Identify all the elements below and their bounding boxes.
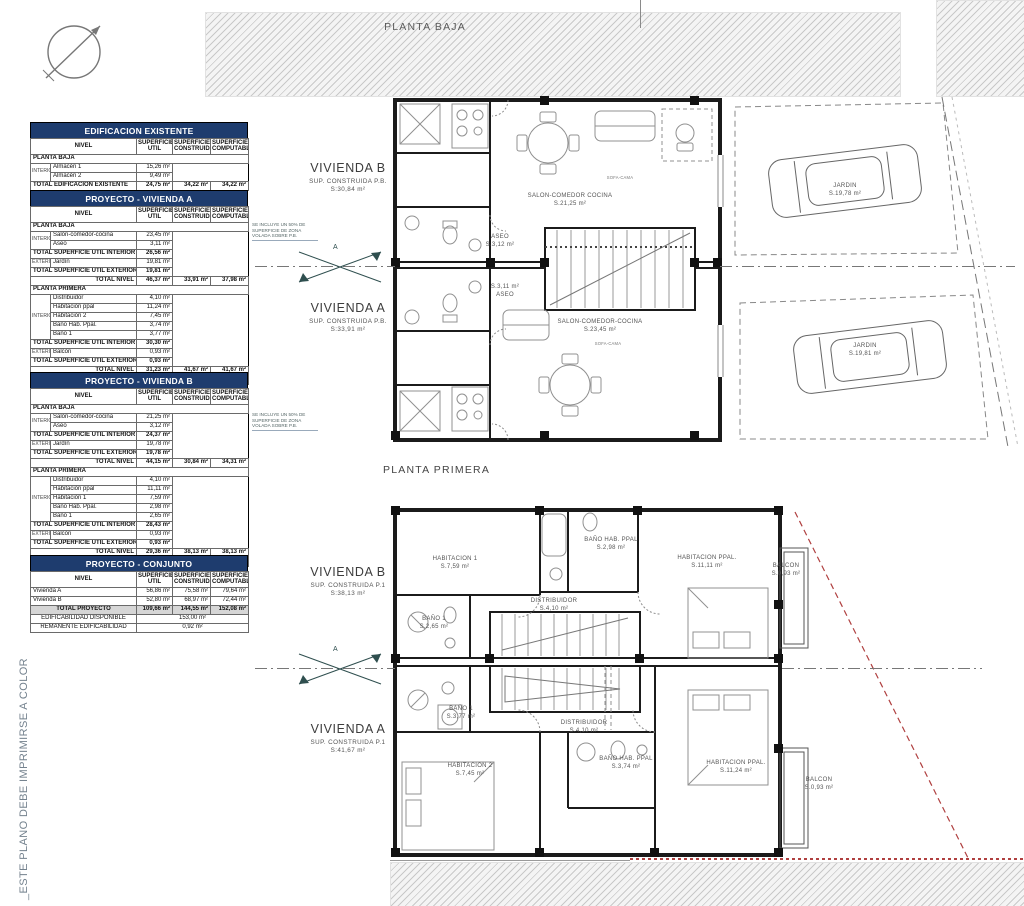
table-cell: TOTAL SUPERFICIE UTIL EXTERIOR	[31, 357, 137, 366]
svg-text:A: A	[333, 646, 338, 653]
table-cell: TOTAL SUPERFICIE UTIL INTERIOR	[31, 249, 137, 258]
dwelling-area: S:33,91 m²	[283, 326, 413, 334]
table-cell	[211, 476, 249, 485]
room-name: HABITACION PPAL.	[663, 555, 751, 563]
room-name: BAÑO 1	[400, 616, 468, 624]
table-cell: NIVEL	[31, 139, 137, 155]
dwelling-label-vivienda-b-pb: VIVIENDA B SUP. CONSTRUIDA P.B. S:30,84 …	[283, 161, 413, 194]
room-name: ASEO	[473, 292, 537, 300]
table-cell: SUPERFICIE COMPUTABLE	[211, 207, 249, 223]
table-cell	[211, 530, 249, 539]
room-name: DISTRIBUIDOR	[545, 720, 623, 728]
summary-table-proyecto-vivienda-a: PROYECTO - VIVIENDA A NIVELSUPERFICIE UT…	[30, 190, 248, 385]
table-cell	[211, 494, 249, 503]
table-cell: Habitación ppal	[51, 303, 137, 312]
room-area: S.11,11 m²	[663, 563, 751, 571]
table-cell: 152,08 m²	[211, 605, 249, 614]
table-cell	[211, 521, 249, 530]
table-cell: 3,74 m²	[137, 321, 173, 330]
dwelling-sub: SUP. CONSTRUIDA P.B.	[283, 318, 413, 326]
table-cell: Aseo	[51, 240, 137, 249]
table-cell: 2,65 m²	[137, 512, 173, 521]
table-cell: INTERIOR	[31, 294, 51, 339]
room-label-aseo-b: ASEO S.3,12 m²	[468, 234, 532, 250]
table-cell: 33,91 m²	[173, 276, 211, 285]
table-cell	[211, 339, 249, 348]
room-name: HABITACION 2	[430, 763, 510, 771]
table-cell: 153,00 m²	[137, 614, 249, 623]
table-cell: SUPERFICIE UTIL	[137, 572, 173, 588]
table-cell: SUPERFICIE CONSTRUIDA	[173, 207, 211, 223]
room-area: S.2,65 m²	[400, 624, 468, 632]
table-cell	[173, 258, 211, 267]
table-cell	[211, 348, 249, 357]
table-cell	[173, 440, 211, 449]
table-cell: 15,26 m²	[137, 163, 173, 172]
table-cell	[173, 539, 211, 548]
room-label-habitacion1-b: HABITACION 1 S.7,59 m²	[415, 556, 495, 572]
room-area: S.23,45 m²	[535, 327, 665, 335]
table-cell: 7,59 m²	[137, 494, 173, 503]
table-cell	[173, 476, 211, 485]
dwelling-area: S:41,67 m²	[283, 747, 413, 755]
table-cell: TOTAL SUPERFICIE UTIL INTERIOR	[31, 431, 137, 440]
room-label-distribuidor-a: DISTRIBUIDOR S.4,10 m²	[545, 720, 623, 736]
dwelling-area: S:30,84 m²	[283, 186, 413, 194]
room-area: S.0,93 m²	[755, 571, 817, 579]
table-cell: TOTAL NIVEL	[31, 276, 137, 285]
table-cell: 7,45 m²	[137, 312, 173, 321]
dwelling-sub: SUP. CONSTRUIDA P.1	[283, 739, 413, 747]
dwelling-label-vivienda-a-pb: VIVIENDA A SUP. CONSTRUIDA P.B. S:33,91 …	[283, 301, 413, 334]
table-cell	[211, 312, 249, 321]
table-cell: 52,80 m²	[137, 596, 173, 605]
table-cell: 34,31 m²	[211, 458, 249, 467]
table-cell: 30,30 m²	[137, 339, 173, 348]
table-cell: EXTERIOR	[31, 530, 51, 539]
section-axis-line	[720, 266, 1015, 267]
room-name: BAÑO 1	[427, 706, 495, 714]
room-label-aseo-a: S.3,11 m² ASEO	[473, 284, 537, 300]
dwelling-name: VIVIENDA A	[283, 722, 413, 736]
room-label-habitacion2-a: HABITACION 2 S.7,45 m²	[430, 763, 510, 779]
hatched-site-band-top-right	[936, 0, 1024, 97]
table-cell: Jardín	[51, 258, 137, 267]
table-cell: Habitación ppal	[51, 485, 137, 494]
table-cell: 34,22 m²	[211, 181, 249, 190]
summary-table-proyecto-conjunto: PROYECTO - CONJUNTO NIVELSUPERFICIE UTIL…	[30, 555, 248, 633]
table-cell: 11,11 m²	[137, 485, 173, 494]
table-cell: Aseo	[51, 422, 137, 431]
room-area: S.3,74 m²	[590, 764, 662, 772]
table-cell: 19,78 m²	[137, 440, 173, 449]
room-label-salon-a: SALON-COMEDOR-COCINA S.23,45 m²	[535, 319, 665, 335]
table-cell	[211, 431, 249, 440]
table-cell	[211, 512, 249, 521]
table-cell	[173, 494, 211, 503]
table-cell: EXTERIOR	[31, 258, 51, 267]
room-area: S.21,25 m²	[505, 201, 635, 209]
table-cell: Baño 1	[51, 330, 137, 339]
table-cell: 0,93 m²	[137, 530, 173, 539]
room-area: S.2,98 m²	[575, 545, 647, 553]
room-area: S.19,78 m²	[805, 191, 885, 199]
ground-floor-title: PLANTA BAJA	[340, 21, 510, 33]
table-cell: SUPERFICIE COMPUTABLE	[211, 139, 249, 155]
room-name: JARDIN	[805, 183, 885, 191]
table-cell: INTERIOR	[31, 413, 51, 431]
room-label-sofa-b: SOFA-CAMA	[595, 175, 645, 180]
room-name: BAÑO HAB. PPAL	[590, 756, 662, 764]
surface-note-pb-b: SE INCLUYE UN 50% DESUPERFICIE DE ZONAVO…	[252, 222, 318, 241]
table-cell: 0,93 m²	[137, 539, 173, 548]
table-cell: 46,37 m²	[137, 276, 173, 285]
table-cell	[173, 249, 211, 258]
table-cell	[173, 312, 211, 321]
table-cell: TOTAL SUPERFICIE UTIL INTERIOR	[31, 521, 137, 530]
table-cell: SUPERFICIE CONSTRUIDA	[173, 389, 211, 405]
table-cell: 3,12 m²	[137, 422, 173, 431]
table-cell	[211, 539, 249, 548]
table-cell	[211, 267, 249, 276]
room-area: S.19,81 m²	[825, 351, 905, 359]
dwelling-sub: SUP. CONSTRUIDA P.B.	[283, 178, 413, 186]
table-cell	[211, 440, 249, 449]
table-cell	[211, 357, 249, 366]
room-name: SALON-COMEDOR COCINA	[505, 193, 635, 201]
table-cell	[173, 530, 211, 539]
table-cell: PLANTA PRIMERA	[31, 467, 249, 476]
note-line: VOLADA SOBRE P.B.	[252, 233, 318, 239]
table-cell	[211, 485, 249, 494]
table-cell: 9,49 m²	[137, 172, 173, 181]
table-cell: SUPERFICIE CONSTRUIDA	[173, 572, 211, 588]
plan-sheet: PLANTA BAJA PLANTA PRIMERA EDIFICACION E…	[0, 0, 1024, 906]
table-cell	[211, 240, 249, 249]
table-cell	[173, 422, 211, 431]
room-name: BALCON	[788, 777, 850, 785]
table-cell	[173, 512, 211, 521]
table-cell: 26,56 m²	[137, 249, 173, 258]
table-cell: EDIFICABILIDAD DISPONIBLE	[31, 614, 137, 623]
room-label-jardin-b: JARDIN S.19,78 m²	[805, 183, 885, 199]
table-cell: SUPERFICIE COMPUTABLE	[211, 389, 249, 405]
table-cell: INTERIOR	[31, 476, 51, 521]
room-name: DISTRIBUIDOR	[515, 598, 593, 606]
table-cell	[173, 303, 211, 312]
table-cell	[211, 172, 249, 181]
table-cell: Salón-comedor-cocina	[51, 231, 137, 240]
table-cell: Salón-comedor-cocina	[51, 413, 137, 422]
table-cell: INTERIOR	[31, 231, 51, 249]
room-label-bano-hab-ppal-a: BAÑO HAB. PPAL S.3,74 m²	[590, 756, 662, 772]
room-label-bano1-b: BAÑO 1 S.2,65 m²	[400, 616, 468, 632]
table-cell: PLANTA PRIMERA	[31, 285, 249, 294]
table-cell	[211, 321, 249, 330]
table-cell: PLANTA BAJA	[31, 222, 249, 231]
table-cell: 4,10 m²	[137, 476, 173, 485]
room-name: HABITACION PPAL.	[692, 760, 780, 768]
room-name: SALON-COMEDOR-COCINA	[535, 319, 665, 327]
table-cell	[173, 348, 211, 357]
table-cell: Almacén 1	[51, 163, 137, 172]
table-cell: 68,97 m²	[173, 596, 211, 605]
table-cell: Distribuidor	[51, 476, 137, 485]
table-cell	[211, 258, 249, 267]
table-cell	[173, 172, 211, 181]
room-label-balcon-b: BALCON S.0,93 m²	[755, 563, 817, 579]
table-cell: Almacén 2	[51, 172, 137, 181]
first-floor-title: PLANTA PRIMERA	[383, 464, 490, 476]
table-cell: 30,84 m²	[173, 458, 211, 467]
table-cell: Baño Hab. Ppal.	[51, 321, 137, 330]
table-cell: 19,78 m²	[137, 449, 173, 458]
room-label-bano1-a: BAÑO 1 S.3,77 m²	[427, 706, 495, 722]
table-cell: 28,43 m²	[137, 521, 173, 530]
table-cell: 34,22 m²	[173, 181, 211, 190]
room-area: S.11,24 m²	[692, 768, 780, 776]
table-cell	[211, 294, 249, 303]
table-cell: TOTAL SUPERFICIE UTIL EXTERIOR	[31, 267, 137, 276]
table-cell: 2,98 m²	[137, 503, 173, 512]
room-area: S.3,12 m²	[468, 242, 532, 250]
table-cell: 3,11 m²	[137, 240, 173, 249]
table-cell: Vivienda B	[31, 596, 137, 605]
table-title: PROYECTO - VIVIENDA B	[30, 372, 248, 388]
table-cell: 3,77 m²	[137, 330, 173, 339]
room-name: HABITACION 1	[415, 556, 495, 564]
table-cell: Habitación 1	[51, 494, 137, 503]
dwelling-name: VIVIENDA A	[283, 301, 413, 315]
table-cell: 37,98 m²	[211, 276, 249, 285]
room-label-jardin-a: JARDIN S.19,81 m²	[825, 343, 905, 359]
room-area: S.3,11 m²	[473, 284, 537, 292]
table-cell: Jardín	[51, 440, 137, 449]
dwelling-sub: SUP. CONSTRUIDA P.1	[283, 582, 413, 590]
table-cell: 144,55 m²	[173, 605, 211, 614]
table-cell: 56,86 m²	[137, 587, 173, 596]
room-name: BAÑO HAB. PPAL	[575, 537, 647, 545]
room-label-balcon-a: BALCON S.0,93 m²	[788, 777, 850, 793]
room-label-bano-hab-ppal-b: BAÑO HAB. PPAL S.2,98 m²	[575, 537, 647, 553]
summary-table-proyecto-vivienda-b: PROYECTO - VIVIENDA B NIVELSUPERFICIE UT…	[30, 372, 248, 567]
table-cell	[173, 163, 211, 172]
table-cell	[173, 431, 211, 440]
table-cell: INTERIOR	[31, 163, 51, 181]
table-cell: SUPERFICIE CONSTRUIDA	[173, 139, 211, 155]
table-cell: 11,24 m²	[137, 303, 173, 312]
section-marker-icon: A	[285, 642, 395, 694]
table-cell	[173, 449, 211, 458]
table-cell	[211, 231, 249, 240]
table-cell: NIVEL	[31, 572, 137, 588]
table-cell	[211, 449, 249, 458]
table-cell: 79,64 m²	[211, 587, 249, 596]
table-cell	[173, 231, 211, 240]
table-cell	[211, 330, 249, 339]
table-cell: 24,37 m²	[137, 431, 173, 440]
registration-tick	[640, 0, 641, 28]
table-cell: SUPERFICIE UTIL	[137, 389, 173, 405]
table-cell: Distribuidor	[51, 294, 137, 303]
table-cell: Balcón	[51, 530, 137, 539]
table-cell: 0,93 m²	[137, 348, 173, 357]
table-cell	[173, 294, 211, 303]
ground-floor-plan-drawing	[390, 95, 1020, 465]
table-cell: Balcón	[51, 348, 137, 357]
table-cell	[211, 413, 249, 422]
table-cell: SUPERFICIE UTIL	[137, 139, 173, 155]
room-area: S.4,10 m²	[515, 606, 593, 614]
table-cell	[211, 422, 249, 431]
table-cell: TOTAL PROYECTO	[31, 605, 137, 614]
dwelling-area: S:38,13 m²	[283, 590, 413, 598]
table-cell	[173, 240, 211, 249]
note-line: VOLADA SOBRE P.B.	[252, 423, 318, 429]
table-cell: 19,81 m²	[137, 267, 173, 276]
table-cell: 21,25 m²	[137, 413, 173, 422]
section-axis-line	[782, 668, 982, 669]
table-cell: Vivienda A	[31, 587, 137, 596]
table-cell: REMANENTE EDIFICABILIDAD	[31, 623, 137, 632]
table-cell: 19,81 m²	[137, 258, 173, 267]
room-area: S.7,45 m²	[430, 771, 510, 779]
table-cell	[173, 357, 211, 366]
table-cell: TOTAL NIVEL	[31, 458, 137, 467]
dwelling-name: VIVIENDA B	[283, 161, 413, 175]
table-cell: NIVEL	[31, 389, 137, 405]
table-cell: 0,92 m²	[137, 623, 249, 632]
hatched-site-band-top	[205, 12, 901, 97]
table-cell: 109,66 m²	[137, 605, 173, 614]
room-name: ASEO	[468, 234, 532, 242]
table-cell: TOTAL EDIFICACION EXISTENTE	[31, 181, 137, 190]
table-cell: Baño Hab. Ppal.	[51, 503, 137, 512]
table-cell	[173, 503, 211, 512]
table-cell	[173, 521, 211, 530]
table-cell: TOTAL SUPERFICIE UTIL EXTERIOR	[31, 539, 137, 548]
table-cell: Baño 1	[51, 512, 137, 521]
table-cell: 23,45 m²	[137, 231, 173, 240]
dwelling-name: VIVIENDA B	[283, 565, 413, 579]
north-compass-icon	[38, 18, 112, 86]
table-cell: PLANTA BAJA	[31, 154, 249, 163]
summary-table-edificacion-existente: EDIFICACION EXISTENTE NIVELSUPERFICIE UT…	[30, 122, 248, 191]
section-marker-icon: A	[285, 240, 395, 292]
table-cell	[173, 485, 211, 494]
table-cell: 72,44 m²	[211, 596, 249, 605]
table-cell: NIVEL	[31, 207, 137, 223]
table-cell	[173, 321, 211, 330]
room-area: S.3,77 m²	[427, 714, 495, 722]
dwelling-label-vivienda-b-p1: VIVIENDA B SUP. CONSTRUIDA P.1 S:38,13 m…	[283, 565, 413, 598]
table-cell: SUPERFICIE COMPUTABLE	[211, 572, 249, 588]
surface-note-pb-a: SE INCLUYE UN 50% DESUPERFICIE DE ZONAVO…	[252, 412, 318, 431]
svg-text:A: A	[333, 244, 338, 251]
table-cell: EXTERIOR	[31, 348, 51, 357]
table-cell	[173, 413, 211, 422]
table-cell: 24,75 m²	[137, 181, 173, 190]
table-title: PROYECTO - VIVIENDA A	[30, 190, 248, 206]
table-cell: PLANTA BAJA	[31, 404, 249, 413]
room-name: BALCON	[755, 563, 817, 571]
room-label-habitacion-ppal-a: HABITACION PPAL. S.11,24 m²	[692, 760, 780, 776]
table-title: PROYECTO - CONJUNTO	[30, 555, 248, 571]
table-cell: 4,10 m²	[137, 294, 173, 303]
room-area: S.7,59 m²	[415, 564, 495, 572]
table-cell: TOTAL SUPERFICIE UTIL INTERIOR	[31, 339, 137, 348]
table-cell: 75,58 m²	[173, 587, 211, 596]
hatched-site-band-bottom	[390, 862, 1024, 906]
table-cell: SUPERFICIE UTIL	[137, 207, 173, 223]
table-title: EDIFICACION EXISTENTE	[30, 122, 248, 138]
room-name: JARDIN	[825, 343, 905, 351]
table-cell	[173, 339, 211, 348]
room-label-distribuidor-b: DISTRIBUIDOR S.4,10 m²	[515, 598, 593, 614]
table-cell: Habitación 2	[51, 312, 137, 321]
room-label-salon-b: SALON-COMEDOR COCINA S.21,25 m²	[505, 193, 635, 209]
room-area: S.4,10 m²	[545, 728, 623, 736]
table-cell	[173, 330, 211, 339]
table-cell: 0,93 m²	[137, 357, 173, 366]
room-label-habitacion-ppal-b: HABITACION PPAL. S.11,11 m²	[663, 555, 751, 571]
table-cell	[211, 503, 249, 512]
room-area: S.0,93 m²	[788, 785, 850, 793]
dwelling-label-vivienda-a-p1: VIVIENDA A SUP. CONSTRUIDA P.1 S:41,67 m…	[283, 722, 413, 755]
print-color-note: _ESTE PLANO DEBE IMPRIMIRSE A COLOR	[18, 658, 30, 900]
table-cell: 44,15 m²	[137, 458, 173, 467]
table-cell	[211, 249, 249, 258]
table-cell: EXTERIOR	[31, 440, 51, 449]
table-cell	[211, 303, 249, 312]
table-cell	[173, 267, 211, 276]
room-label-sofa-a: SOFA-CAMA	[583, 341, 633, 346]
table-cell	[211, 163, 249, 172]
table-cell: TOTAL SUPERFICIE UTIL EXTERIOR	[31, 449, 137, 458]
